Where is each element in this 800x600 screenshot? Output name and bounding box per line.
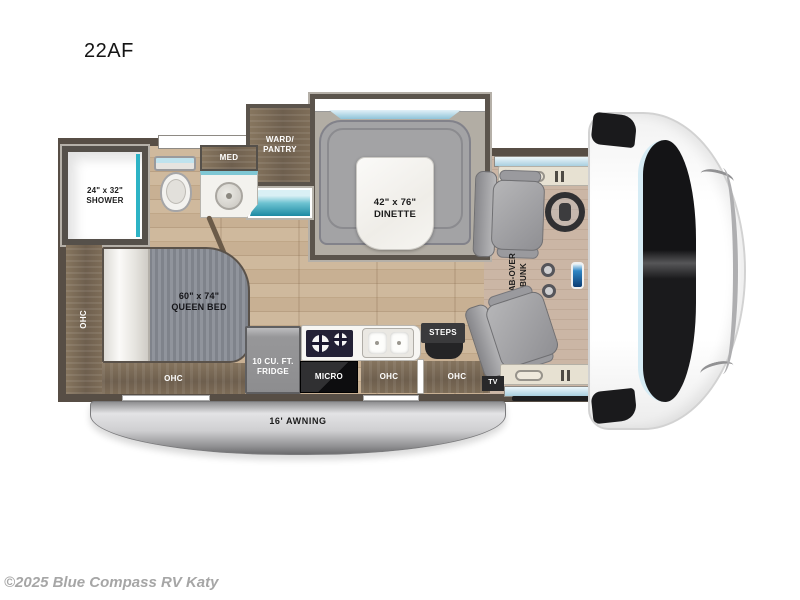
door-jamb bbox=[417, 359, 424, 394]
bath-sink bbox=[215, 182, 243, 210]
bed-name-label: QUEEN BED bbox=[152, 302, 246, 313]
steps-label: STEPS bbox=[429, 328, 457, 338]
dash-vent bbox=[555, 171, 558, 182]
fridge-label-2: FRIDGE bbox=[257, 367, 289, 377]
awning: 16' AWNING bbox=[90, 401, 506, 455]
fridge: 10 CU. FT. FRIDGE bbox=[245, 326, 301, 394]
awning-label: 16' AWNING bbox=[269, 416, 326, 454]
burner-large bbox=[312, 335, 329, 352]
ohc-bed-side-cabinet: OHC bbox=[66, 245, 102, 394]
ohc-kitchen-label: OHC bbox=[380, 372, 399, 382]
toilet bbox=[160, 172, 192, 212]
tv-label: TV bbox=[488, 379, 498, 387]
sink-basin-left bbox=[368, 332, 387, 354]
windshield bbox=[638, 140, 696, 402]
microwave: MICRO bbox=[300, 361, 358, 393]
burner-small bbox=[334, 333, 347, 346]
steering-wheel bbox=[545, 192, 585, 232]
med-cabinet: MED bbox=[200, 145, 258, 171]
floorplan-page: 22AF 42" x 76" DINETTE WARD/ PANTRY 24" … bbox=[0, 0, 800, 600]
ohc-entry-label: OHC bbox=[448, 372, 467, 382]
ohc-kitchen-cabinet: OHC bbox=[361, 361, 417, 393]
bath-sink-counter bbox=[200, 171, 258, 218]
wall-top-cab bbox=[475, 148, 592, 156]
ohc-bed-foot-label: OHC bbox=[164, 374, 183, 384]
shower-size-label: 24" x 32" bbox=[87, 186, 123, 196]
cab-step-bar bbox=[512, 396, 598, 401]
ohc-bed-side-label: OHC bbox=[79, 310, 89, 329]
blue-bottle bbox=[571, 262, 584, 289]
dash-bottom bbox=[500, 364, 592, 385]
dash-vent bbox=[567, 370, 570, 381]
copyright-watermark: ©2025 Blue Compass RV Katy bbox=[4, 574, 218, 591]
dinette-table: 42" x 76" DINETTE bbox=[356, 157, 434, 250]
dash-vent bbox=[561, 171, 564, 182]
page-title: 22AF bbox=[84, 40, 134, 63]
entry-step bbox=[425, 343, 463, 359]
sink-basin-right bbox=[390, 332, 409, 354]
dinette-window bbox=[329, 110, 461, 119]
toilet-tank bbox=[154, 156, 196, 171]
cooktop bbox=[306, 330, 353, 357]
entry-steps: STEPS bbox=[421, 323, 465, 343]
dash-vent bbox=[561, 370, 564, 381]
queen-bed: 60" x 74" QUEEN BED bbox=[102, 247, 250, 363]
tv: TV bbox=[482, 376, 504, 391]
dinette-size-label: 42" x 76" bbox=[374, 197, 417, 208]
bed-size-label: 60" x 74" bbox=[152, 291, 246, 302]
bed-pillows bbox=[104, 249, 150, 361]
med-label: MED bbox=[220, 153, 239, 163]
dinette-name-label: DINETTE bbox=[374, 209, 416, 220]
shower-name-label: SHOWER bbox=[86, 196, 123, 206]
fridge-label-1: 10 CU. FT. bbox=[252, 357, 293, 367]
dash-handle bbox=[515, 370, 543, 381]
dinette-slideout: 42" x 76" DINETTE bbox=[310, 94, 490, 260]
ohc-bed-foot-cabinet: OHC bbox=[102, 363, 245, 394]
ward-pantry-label-1: WARD/ bbox=[266, 135, 294, 145]
shower: 24" x 32" SHOWER bbox=[62, 146, 148, 245]
kitchen-sink bbox=[362, 328, 414, 358]
ward-pantry-label-2: PANTRY bbox=[263, 145, 297, 155]
micro-label: MICRO bbox=[315, 372, 343, 382]
bed-label: 60" x 74" QUEEN BED bbox=[152, 291, 246, 313]
pantry-counter-top bbox=[250, 190, 310, 216]
